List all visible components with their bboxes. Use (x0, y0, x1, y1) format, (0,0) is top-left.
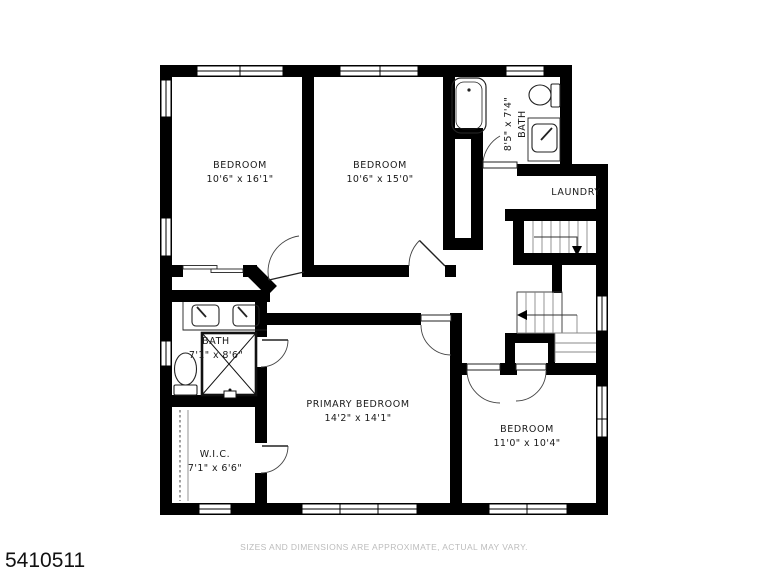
room-label-wic: W.I.C. 7'1" x 6'6" (188, 448, 242, 477)
double-vanity-sink-icon (183, 302, 267, 330)
bathtub-icon (452, 78, 486, 133)
window (597, 386, 607, 437)
door-bedroom-top-left (268, 236, 304, 280)
door-closet-bottom-right (516, 364, 546, 401)
room-label-bedroom-top-middle: BEDROOM 10'6" x 15'0" (346, 159, 413, 188)
door-bath-left (261, 340, 288, 367)
window (161, 80, 171, 117)
window (506, 66, 544, 76)
window (302, 504, 417, 514)
listing-id: 5410511 (5, 549, 85, 573)
stairs-direction-arrow (517, 310, 527, 320)
window (489, 504, 567, 514)
window (197, 66, 283, 76)
closet-rod-icon (180, 410, 188, 501)
disclaimer-text: SIZES AND DIMENSIONS ARE APPROXIMATE, AC… (0, 542, 768, 552)
door-primary-bedroom (421, 315, 451, 355)
staircase-lower (517, 292, 596, 362)
door-bedroom-bottom-right (467, 364, 500, 403)
toilet-icon (529, 84, 560, 107)
window (597, 296, 607, 331)
window (199, 504, 231, 514)
door-bedroom-top-middle (409, 241, 445, 267)
window (161, 341, 171, 366)
sliding-closet-doors (183, 266, 243, 273)
staircase-upper (533, 221, 587, 256)
room-label-bedroom-bottom-right: BEDROOM 11'0" x 10'4" (493, 423, 560, 452)
door-wic (261, 446, 288, 473)
room-label-primary-bedroom: PRIMARY BEDROOM 14'2" x 14'1" (306, 398, 409, 427)
floor-plan-page: BEDROOM 10'6" x 16'1" BEDROOM 10'6" x 15… (0, 0, 768, 576)
window (161, 218, 171, 256)
window (340, 66, 418, 76)
room-label-bath-left: BATH 7'1" x 8'6" (189, 335, 243, 364)
room-label-laundry: LAUNDRY (551, 186, 600, 200)
vanity-sink-icon (528, 118, 560, 161)
floor-plan-drawing (0, 0, 768, 576)
room-label-bath-upper: 8'5" x 7'4" BATH (502, 97, 531, 151)
room-label-bedroom-top-left: BEDROOM 10'6" x 16'1" (206, 159, 273, 188)
